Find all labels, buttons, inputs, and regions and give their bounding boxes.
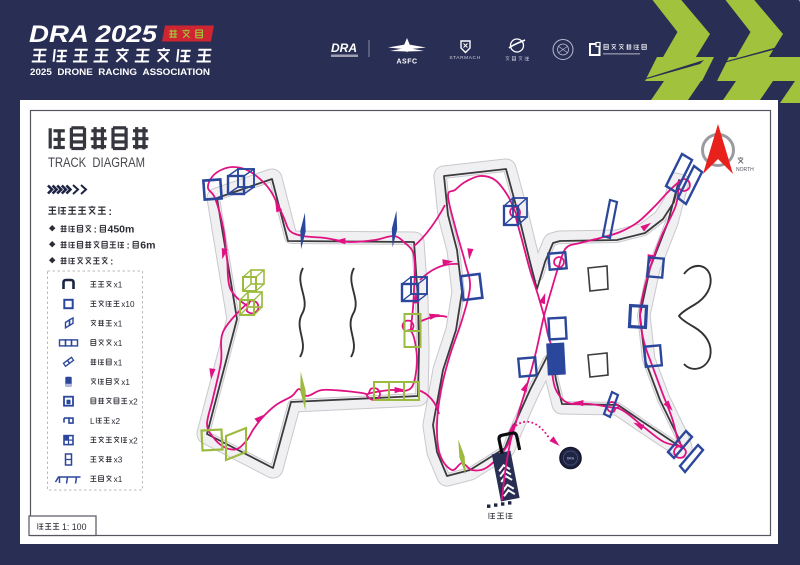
svg-text:450m: 450m [108, 224, 135, 236]
svg-text::: : [109, 206, 113, 218]
svg-text:L: L [90, 417, 95, 426]
svg-text:DRA 2025: DRA 2025 [29, 21, 158, 48]
svg-text:x1: x1 [114, 339, 123, 348]
svg-text:x2: x2 [111, 417, 120, 426]
svg-text:x2: x2 [129, 436, 138, 445]
svg-text:STARMACH: STARMACH [449, 55, 480, 61]
svg-text:6m: 6m [140, 240, 155, 252]
svg-text:ASFC: ASFC [396, 59, 417, 66]
svg-text:1: 100: 1: 100 [62, 522, 87, 532]
svg-text:x10: x10 [121, 300, 135, 309]
svg-text:DRA: DRA [567, 457, 575, 461]
svg-text:x1: x1 [121, 378, 130, 387]
svg-text:x2: x2 [129, 397, 138, 406]
svg-text:TRACK DIAGRAM: TRACK DIAGRAM [48, 154, 145, 170]
svg-text:2025 DRONE RACING ASSOCIATI: 2025 DRONE RACING ASSOCIATION [30, 67, 210, 77]
svg-text::: : [110, 257, 113, 267]
svg-text:x1: x1 [114, 359, 123, 368]
svg-text:NORTH: NORTH [736, 167, 754, 173]
svg-text:DRA: DRA [331, 41, 357, 55]
svg-text:x1: x1 [114, 475, 123, 484]
svg-text::: : [127, 241, 130, 251]
svg-text::: : [94, 225, 97, 235]
svg-text:x3: x3 [114, 456, 123, 465]
svg-text:x1: x1 [114, 320, 123, 329]
svg-text:x1: x1 [114, 281, 123, 290]
